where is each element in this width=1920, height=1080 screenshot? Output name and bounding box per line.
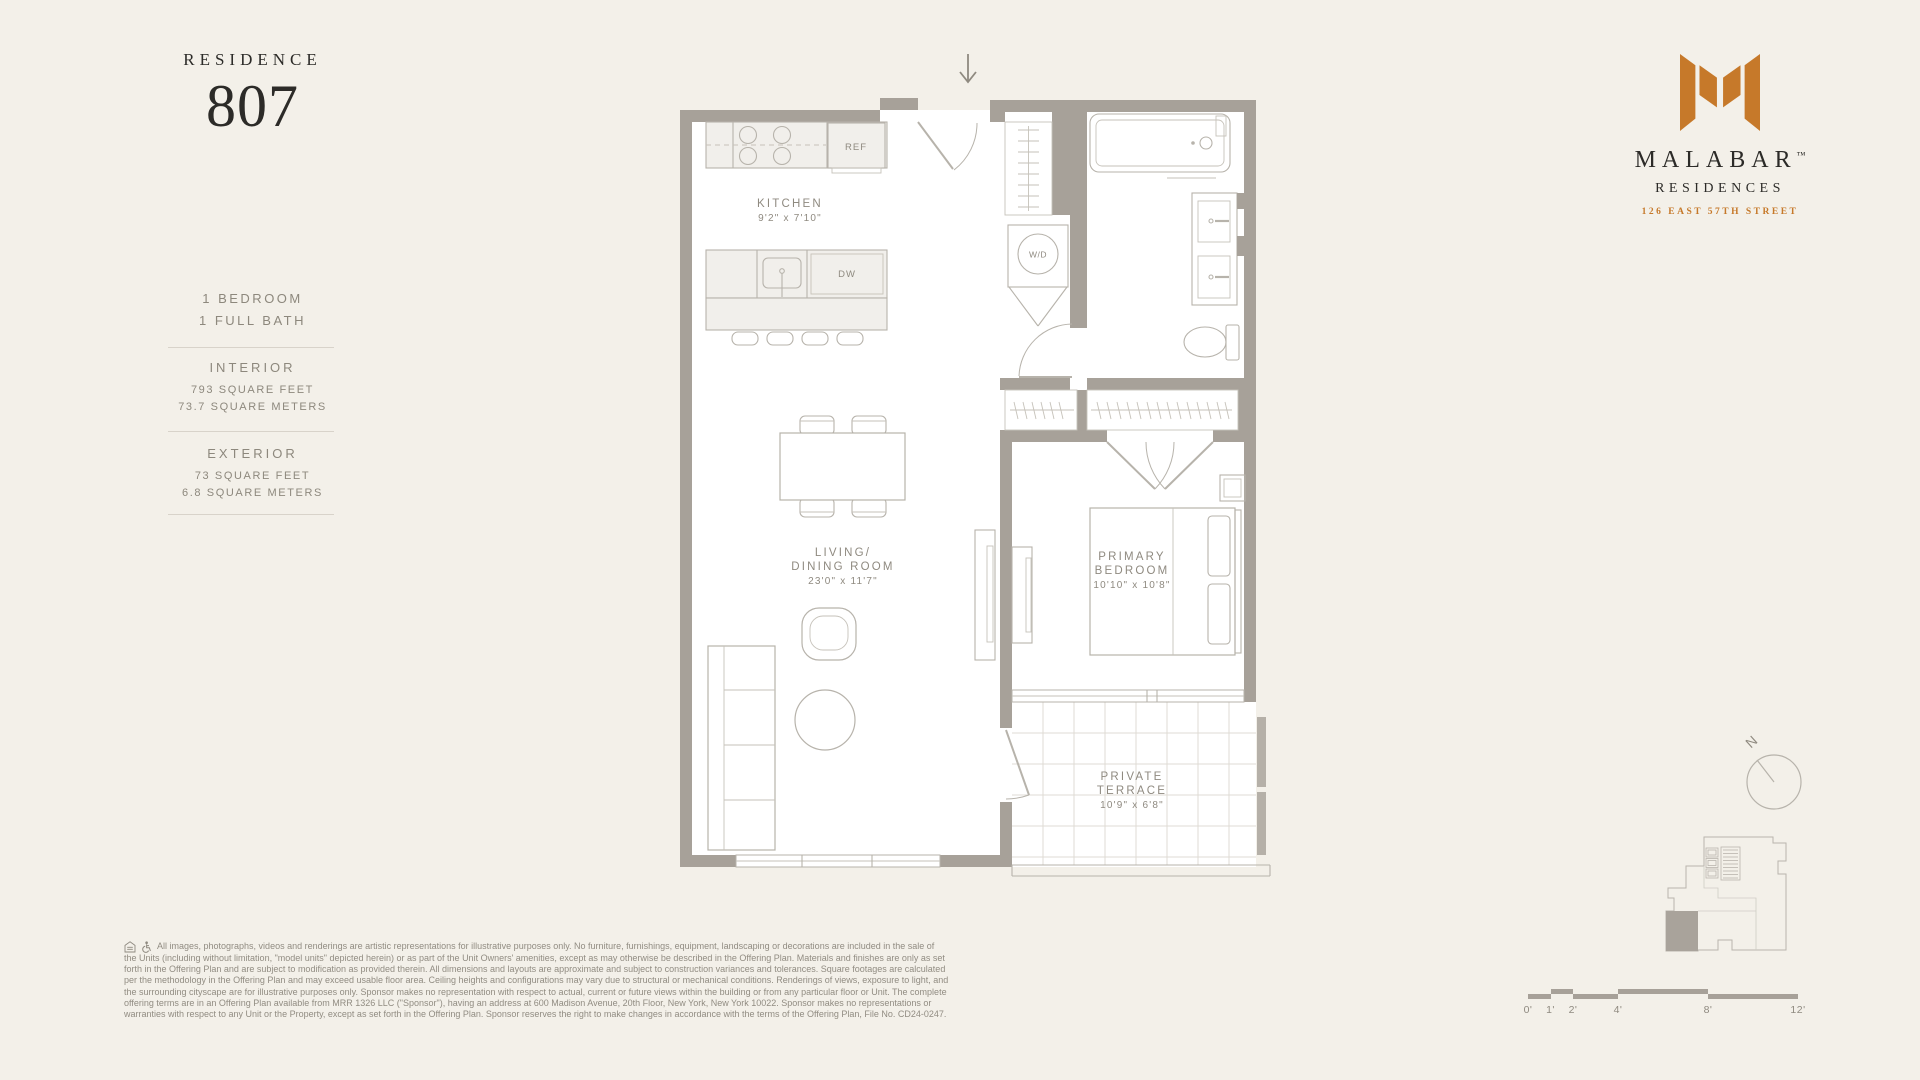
svg-text:PRIVATE: PRIVATE: [1101, 771, 1164, 783]
disclaimer: All images, photographs, videos and rend…: [124, 941, 944, 1020]
bedroom-window: [1012, 690, 1244, 702]
brand-name: MALABAR™: [1630, 147, 1810, 174]
svg-text:9'2" x 7'10": 9'2" x 7'10": [758, 213, 822, 224]
ref-label: REF: [845, 142, 867, 153]
dw-label: DW: [838, 269, 856, 280]
divider: [168, 431, 334, 432]
divider: [168, 514, 334, 515]
sofa-icon: [708, 646, 775, 850]
disclaimer-line: the Units (including without limitation,…: [124, 953, 944, 964]
svg-text:10'10" x 10'8": 10'10" x 10'8": [1093, 580, 1170, 591]
keyplan-unit-highlight: [1666, 911, 1698, 951]
equal-housing-icon: [124, 941, 136, 953]
compass-n: N: [1742, 732, 1760, 751]
scale-label: 1': [1546, 1004, 1555, 1016]
svg-text:LIVING/: LIVING/: [815, 547, 871, 559]
floorplan-drawing: REF DW KITCHEN 9'2" x 7'10": [660, 30, 1280, 910]
living-window: [736, 855, 940, 867]
svg-text:DINING ROOM: DINING ROOM: [791, 561, 894, 573]
unit-bedrooms: 1 BEDROOM: [110, 288, 395, 310]
interior-title: INTERIOR: [110, 360, 395, 375]
brand-name-text: MALABAR: [1635, 147, 1797, 173]
wd-label: W/D: [1029, 250, 1047, 260]
exterior-title: EXTERIOR: [110, 446, 395, 461]
bedroom-label: PRIMARY BEDROOM 10'10" x 10'8": [1093, 551, 1170, 591]
compass-icon: N: [1738, 724, 1810, 816]
accessibility-icon: [140, 941, 152, 953]
svg-text:KITCHEN: KITCHEN: [757, 198, 823, 210]
divider: [168, 347, 334, 348]
svg-text:10'9" x 6'8": 10'9" x 6'8": [1100, 800, 1164, 811]
keyplan-icon: [1660, 836, 1802, 958]
disclaimer-line: All images, photographs, videos and rend…: [157, 941, 934, 952]
dining-table-icon: [780, 433, 905, 500]
unit-info: 1 BEDROOM 1 FULL BATH: [110, 288, 395, 332]
svg-text:PRIMARY: PRIMARY: [1098, 551, 1166, 563]
exterior-sqft: 73 SQUARE FEET: [110, 468, 395, 485]
scale-label: 0': [1524, 1004, 1533, 1016]
interior-block: INTERIOR 793 SQUARE FEET 73.7 SQUARE MET…: [110, 360, 395, 416]
disclaimer-line: the surrounding cityscape are for illust…: [124, 987, 944, 998]
svg-text:BEDROOM: BEDROOM: [1095, 565, 1170, 577]
scale-label: 2': [1569, 1004, 1578, 1016]
disclaimer-line: warranties with respect to any Unit or t…: [124, 1009, 944, 1020]
brand-address: 126 EAST 57TH STREET: [1630, 207, 1810, 217]
exterior-sqm: 6.8 SQUARE METERS: [110, 485, 395, 502]
round-table-icon: [795, 690, 855, 750]
entry-arrow-icon: [960, 54, 976, 82]
brand-tm: ™: [1797, 150, 1806, 160]
disclaimer-line: offering terms are in an Offering Plan a…: [124, 998, 944, 1009]
terrace-label: PRIVATE TERRACE 10'9" x 6'8": [1097, 771, 1167, 811]
exterior-block: EXTERIOR 73 SQUARE FEET 6.8 SQUARE METER…: [110, 446, 395, 502]
svg-text:23'0" x 11'7": 23'0" x 11'7": [808, 576, 878, 587]
kitchen-island: [706, 298, 887, 330]
scale-label: 12': [1790, 1004, 1805, 1016]
scale-label: 4': [1614, 1004, 1623, 1016]
floorplan-page: RESIDENCE 807 1 BEDROOM 1 FULL BATH INTE…: [0, 0, 1920, 1080]
keyplan-elevators: [1706, 847, 1740, 880]
unit-baths: 1 FULL BATH: [110, 310, 395, 332]
disclaimer-line: forth in the Offering Plan and are subje…: [124, 964, 944, 975]
disclaimer-icons: [124, 941, 152, 953]
brand-block: MALABAR™ RESIDENCES 126 EAST 57TH STREET: [1630, 54, 1810, 217]
residence-label: RESIDENCE: [110, 50, 395, 70]
malabar-logo-icon: [1680, 54, 1760, 132]
scale-bar: 0' 1' 2' 4' 8' 12': [1528, 989, 1800, 1021]
scale-label: 8': [1704, 1004, 1713, 1016]
interior-sqm: 73.7 SQUARE METERS: [110, 399, 395, 416]
residence-number: 807: [110, 76, 395, 136]
svg-text:TERRACE: TERRACE: [1097, 785, 1167, 797]
disclaimer-line: per the methodology in the Offering Plan…: [124, 975, 944, 986]
brand-type: RESIDENCES: [1630, 181, 1810, 197]
interior-sqft: 793 SQUARE FEET: [110, 382, 395, 399]
